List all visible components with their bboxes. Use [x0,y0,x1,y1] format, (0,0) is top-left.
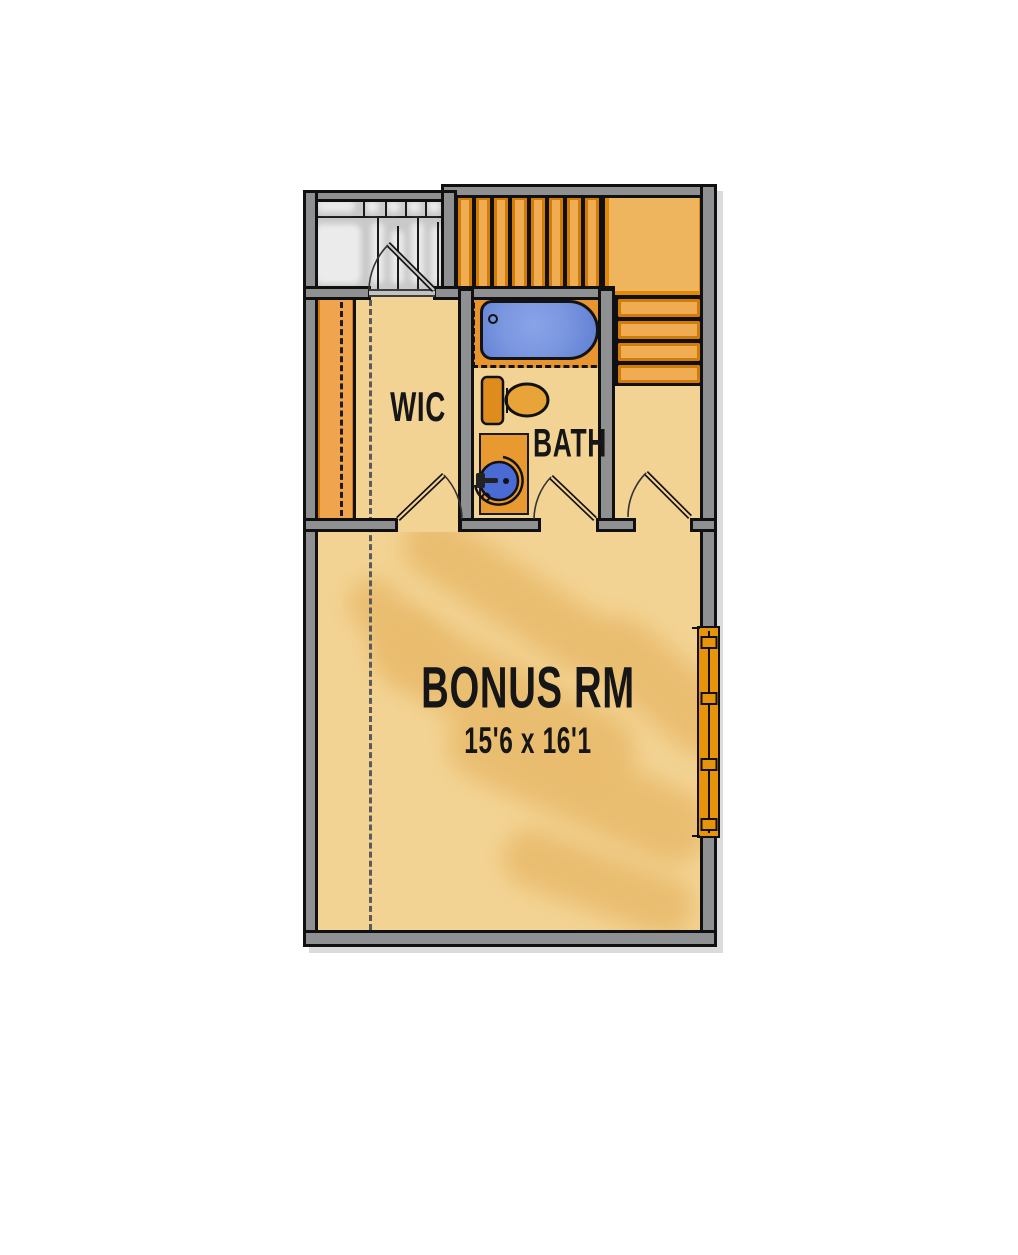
staircase-upper-run [455,194,602,292]
stair-hall-floor [606,380,706,532]
ceiling-break-line [369,300,372,930]
stair-landing [602,194,703,298]
stair-tread [512,197,526,289]
room-label-bath: BATH [533,422,607,467]
wall-bottom [303,930,717,947]
wall-wic-bath-divider [458,288,474,532]
floor-plan: WIC BATH BONUS RM 15'6 x 16'1 [0,0,1018,1255]
stair-tread [549,197,563,289]
wall-bath-hall-divider [598,288,615,532]
wall-bonus-top-3 [596,518,636,532]
stair-tread [567,197,581,289]
wall-bath-top [458,286,615,300]
closet-shelf [317,297,355,521]
window-latch [700,636,717,649]
stair-tread [458,197,472,289]
closet-shelf-edge [353,300,356,518]
stair-tread [531,197,545,289]
room-label-wic: WIC [390,383,446,431]
window-latch [700,818,717,831]
wall-bonus-top-2 [459,518,541,532]
window [697,626,720,838]
vanity-cabinet [479,433,529,515]
window-latch [700,758,717,771]
stair-tread [618,299,700,317]
stair-tread [585,197,599,289]
stair-tread [618,321,700,339]
room-label-bonus: BONUS RM [421,655,635,722]
staircase-lower-run [615,296,703,386]
room-dimensions-bonus: 15'6 x 16'1 [464,720,592,762]
closet-rod-line [340,302,343,516]
attic-storage-area [311,196,445,292]
wall-bonus-top-4 [690,518,717,532]
attic-door-threshold [369,289,435,297]
stair-tread [618,343,700,361]
stair-tread [618,365,700,383]
wall-left [303,190,318,947]
wall-attic-bottom-right [433,286,461,300]
stair-tread [494,197,508,289]
stair-tread [476,197,490,289]
wall-attic-bottom-left [303,286,371,300]
window-glass-line [708,631,711,833]
bathtub [480,300,599,360]
window-latch [700,692,717,705]
wall-top-attic [303,190,455,202]
wall-bonus-top-1 [303,518,398,532]
wall-attic-stair-divider [441,190,457,300]
wall-top-stairs [441,184,717,198]
